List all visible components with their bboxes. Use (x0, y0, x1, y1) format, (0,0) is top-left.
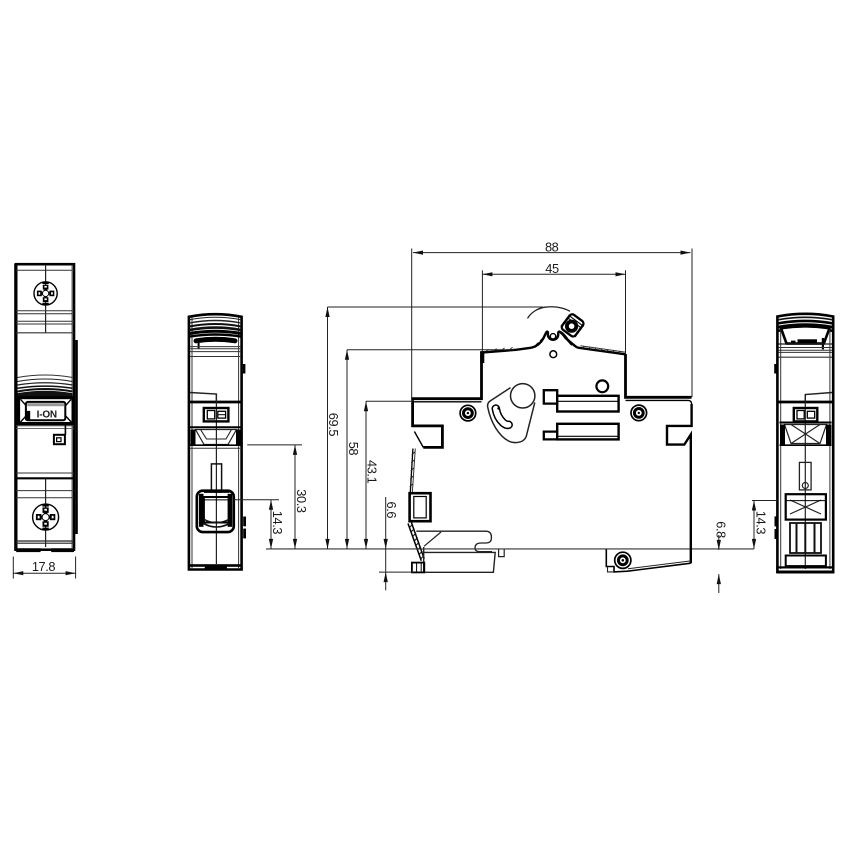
svg-text:6.6: 6.6 (384, 502, 399, 519)
svg-text:I-ON: I-ON (37, 409, 57, 420)
svg-text:45: 45 (545, 261, 559, 276)
svg-text:17.8: 17.8 (32, 559, 56, 574)
svg-text:69.5: 69.5 (326, 413, 341, 437)
svg-text:30.3: 30.3 (294, 489, 309, 513)
svg-text:14.3: 14.3 (270, 511, 285, 535)
svg-text:88: 88 (545, 240, 559, 255)
svg-text:43.1: 43.1 (365, 460, 380, 484)
svg-text:14.3: 14.3 (753, 511, 768, 535)
svg-text:58: 58 (346, 442, 361, 456)
svg-text:6.8: 6.8 (713, 521, 728, 538)
